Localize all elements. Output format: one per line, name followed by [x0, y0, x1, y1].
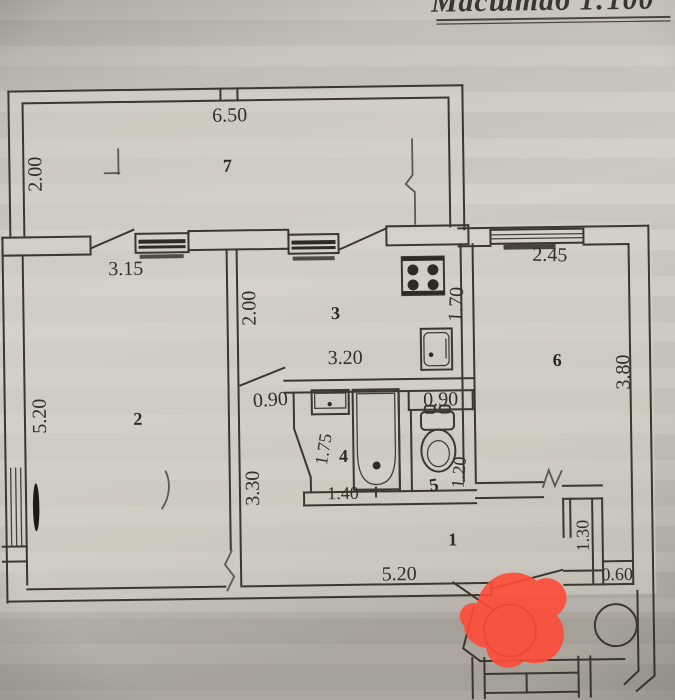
dim-closet-width: 0.60: [601, 564, 633, 584]
dim-bath-width: 1.40: [327, 483, 359, 503]
room-label-bath: 4: [339, 446, 348, 466]
room-label-balcony: 7: [223, 155, 232, 175]
scale-note-text: Масштаб 1:100: [430, 0, 655, 19]
floor-plan-drawing: Масштаб 1:100: [0, 0, 675, 700]
dim-living-wall: 3.30: [242, 471, 264, 506]
scanned-floor-plan: Масштаб 1:100: [0, 0, 675, 700]
dim-wc-depth: 1.20: [447, 456, 470, 489]
dim-kitchen-width: 3.20: [327, 347, 362, 369]
dim-bath-door: 0.90: [252, 388, 288, 412]
room-label-bedroom: 6: [553, 350, 562, 370]
dim-balcony-width: 6.50: [212, 104, 247, 126]
dim-living-height: 5.20: [29, 399, 51, 434]
dim-balcony-depth: 2.00: [24, 157, 46, 192]
room-label-living: 2: [133, 409, 142, 429]
dim-wc-door: 0.90: [423, 388, 458, 410]
dim-kitchen-depth: 2.00: [238, 291, 260, 326]
dim-bedroom-width: 2.45: [532, 244, 567, 267]
room-label-kitchen: 3: [331, 303, 340, 323]
dim-living-width: 3.15: [108, 258, 143, 280]
dim-kitchen-side: 1.70: [444, 286, 468, 322]
dim-bedroom-height: 3.80: [612, 354, 634, 389]
room-label-hall: 1: [448, 529, 457, 549]
dim-hall-width: 5.20: [381, 563, 416, 585]
dim-closet-depth: 1.30: [572, 520, 592, 552]
